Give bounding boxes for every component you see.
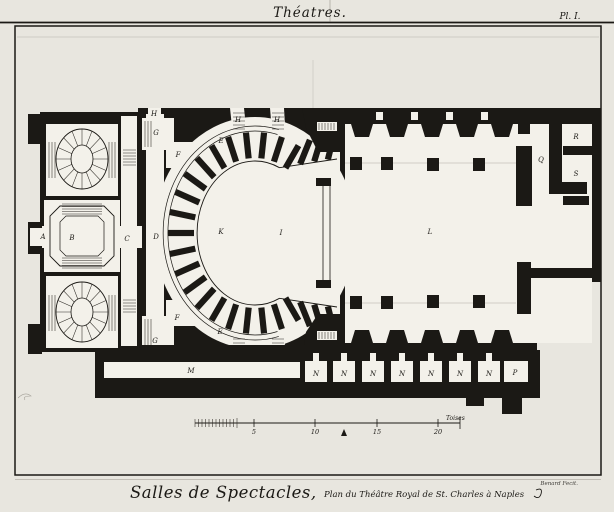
theater-plan-engraving: Théatres. Pl. I. [0, 0, 614, 512]
scale-tick-10: 10 [311, 428, 319, 436]
plan-label-n5: N [427, 370, 435, 378]
plan-label-r: R [572, 133, 579, 141]
scale-tick-15: 15 [373, 428, 381, 436]
engraved-plate: Théatres. Pl. I. [0, 0, 614, 512]
plan-label-d: D [152, 233, 159, 241]
caption-subtitle: Plan du Théâtre Royal de St. Charles à N… [323, 489, 525, 500]
theater-plan: A B C D E F G H H H E F G K I L M N N N … [28, 60, 601, 414]
page-title: Théatres. [273, 5, 347, 21]
plan-label-p: P [512, 369, 518, 377]
plan-label-m: M [186, 367, 195, 375]
landing-f-top [166, 142, 196, 168]
plan-label-a: A [39, 233, 45, 241]
auditorium [138, 108, 356, 360]
scale-tick-5: 5 [252, 428, 256, 436]
stage-north-wall [345, 108, 601, 124]
engraver-credit: Benard Fecit. [539, 481, 578, 487]
plan-label-h-mid: H [234, 116, 242, 124]
scale-unit: Toises [446, 415, 465, 422]
plan-label-h-right: H [273, 116, 281, 124]
plan-label-c: C [124, 235, 130, 243]
plan-label-n6: N [456, 370, 464, 378]
plan-label-s: S [574, 170, 579, 178]
plan-label-n3: N [369, 370, 377, 378]
plan-label-n4: N [398, 370, 406, 378]
plan-label-h-left: H [150, 110, 158, 118]
plan-label-n1: N [312, 370, 320, 378]
corridor-m [104, 362, 310, 378]
plan-label-g-bottom: G [152, 337, 158, 345]
landing-f-bottom [166, 300, 196, 326]
plan-label-g-top: G [153, 129, 159, 137]
east-wall [592, 108, 601, 282]
plan-label-i: I [279, 229, 283, 237]
plan-label-b: B [68, 234, 74, 242]
plan-label-n7: N [485, 370, 493, 378]
corridor-c [121, 116, 137, 346]
caption-title: Salles de Spectacles, [130, 483, 317, 502]
plan-label-n2: N [340, 370, 348, 378]
plan-label-q: Q [538, 156, 544, 164]
plan-label-l: L [427, 228, 433, 236]
plan-label-k: K [217, 228, 224, 236]
plan-label-e-bottom: E [216, 328, 222, 336]
plate-number: Pl. I. [558, 12, 580, 22]
stage-area [345, 108, 601, 360]
plan-label-e-top: E [217, 137, 223, 145]
scale-tick-20: 20 [433, 428, 442, 436]
